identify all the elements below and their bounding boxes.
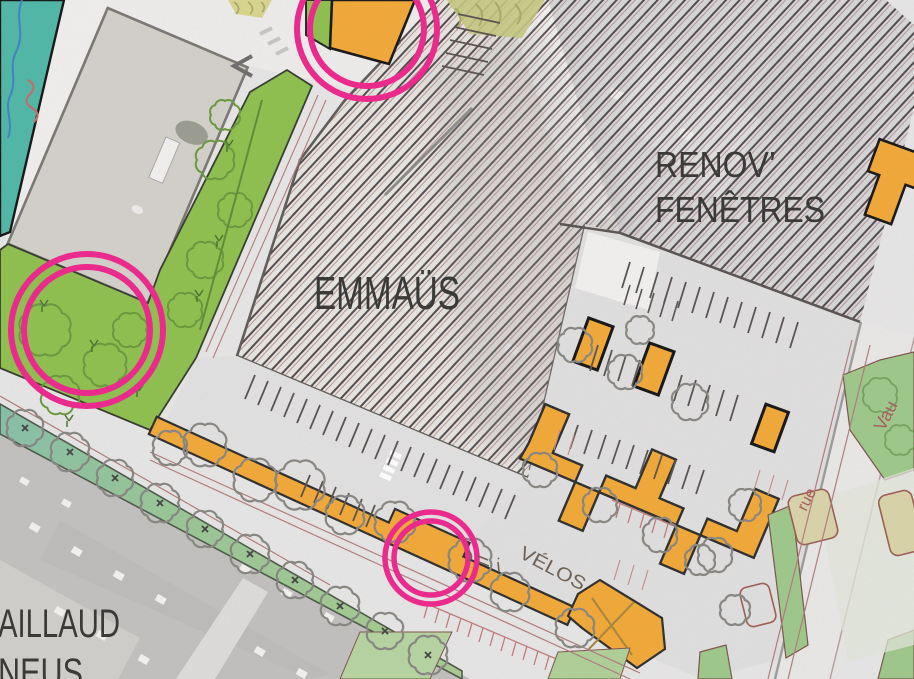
svg-text:AILLAUD: AILLAUD (0, 602, 120, 646)
svg-text:EMMAÜS: EMMAÜS (314, 267, 460, 319)
svg-text:NEUS: NEUS (0, 651, 83, 679)
svg-text:RENOV’: RENOV’ (655, 144, 776, 185)
svg-text:FENÊTRES: FENÊTRES (655, 189, 825, 230)
